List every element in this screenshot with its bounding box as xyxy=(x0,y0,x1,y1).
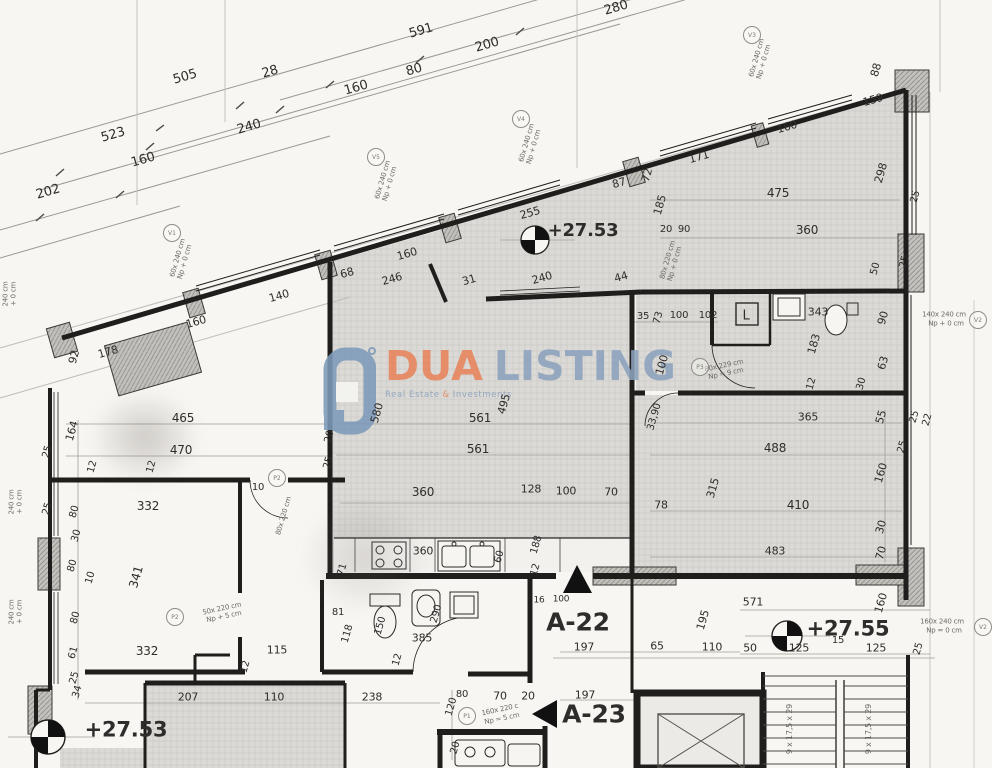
dimension-label: 50 xyxy=(743,643,757,654)
stair-note: 9 x 17,5 x 29 xyxy=(786,704,794,754)
dimension-label: 73 xyxy=(652,311,665,326)
label-layer: 5052859120080160523240160202280921781601… xyxy=(0,0,992,768)
dimension-label: 80 xyxy=(456,690,468,700)
dimension-label: 240 xyxy=(236,117,263,136)
dimension-label: 70 xyxy=(493,691,507,702)
dimension-label: 63 xyxy=(876,355,890,371)
dimension-label: 25 xyxy=(909,190,922,205)
dimension-label: 50 xyxy=(869,262,882,277)
dimension-label: 30 xyxy=(855,377,868,392)
dimension-label: 197 xyxy=(574,642,594,653)
dimension-label: 290 xyxy=(430,604,445,625)
unit-label-a23: A-23 xyxy=(562,702,626,727)
dimension-label: 33,90 xyxy=(646,402,663,431)
opening-marker-badge: V3 xyxy=(743,26,761,44)
dimension-label: 255 xyxy=(519,205,542,221)
opening-note: 80x 220 cm xyxy=(275,496,293,536)
dimension-label: 10 xyxy=(84,571,97,586)
opening-note: 240 cm xyxy=(9,489,16,514)
dimension-label: 160 xyxy=(873,592,889,615)
dimension-label: 128 xyxy=(521,484,541,495)
dimension-label: L xyxy=(742,310,749,323)
dimension-label: 385 xyxy=(412,633,432,644)
dimension-label: 10 xyxy=(252,483,264,493)
opening-note: 240 cm xyxy=(9,599,16,624)
dimension-label: 22 xyxy=(921,413,934,428)
dimension-label: 20 xyxy=(521,691,535,702)
dimension-label: 465 xyxy=(172,412,194,424)
dimension-label: 341 xyxy=(127,565,145,590)
opening-marker-badge: P2 xyxy=(268,469,286,487)
dimension-label: 188 xyxy=(530,535,545,556)
dimension-label: 343 xyxy=(808,307,828,318)
dimension-label: 60 xyxy=(493,550,506,565)
dimension-label: 160 xyxy=(873,462,889,485)
level-annotation: +27.53 xyxy=(548,222,619,240)
dimension-label: 20 xyxy=(449,741,462,756)
opening-marker-badge: P1 xyxy=(458,707,476,725)
dimension-label: 470 xyxy=(170,444,192,456)
dimension-label: 523 xyxy=(100,125,127,144)
dimension-label: 110 xyxy=(702,642,722,653)
dimension-label: 80 xyxy=(68,505,81,520)
opening-marker-badge: P3 xyxy=(691,358,709,376)
dimension-label: 28 xyxy=(260,64,279,81)
dimension-label: 55 xyxy=(874,409,888,425)
dimension-label: 20 xyxy=(660,225,672,235)
dimension-label: 115 xyxy=(267,645,287,656)
dimension-label: 195 xyxy=(695,609,711,632)
stair-note: 9 x 17,5 x 29 xyxy=(865,704,873,754)
dimension-label: 30 xyxy=(70,529,83,544)
dimension-label: 30 xyxy=(874,519,888,535)
dimension-label: 25 xyxy=(322,456,335,471)
dimension-label: 561 xyxy=(469,412,491,424)
dimension-label: 100 xyxy=(553,596,570,605)
dimension-label: 25 xyxy=(41,502,54,517)
dimension-label: 12 xyxy=(805,377,818,392)
dimension-label: 88 xyxy=(869,62,883,78)
dimension-label: 44 xyxy=(613,270,629,284)
dimension-label: 495 xyxy=(496,393,512,416)
opening-marker-badge: V4 xyxy=(512,110,530,128)
dimension-label: 150 xyxy=(374,616,389,637)
dimension-label: 160 xyxy=(396,246,419,262)
dimension-label: 110 xyxy=(264,692,284,703)
opening-marker-badge: V5 xyxy=(367,148,385,166)
opening-marker-badge: V1 xyxy=(163,224,181,242)
dimension-label: 365 xyxy=(798,412,818,423)
floorplan-canvas: DUA LISTING Real Estate & Investments 50… xyxy=(0,0,992,768)
dimension-label: 125 xyxy=(789,643,809,654)
dimension-label: 90 xyxy=(876,310,890,326)
dimension-label: 102 xyxy=(699,311,718,321)
dimension-label: 561 xyxy=(467,443,489,455)
dimension-label: 246 xyxy=(381,271,404,287)
dimension-label: 12 xyxy=(86,460,99,475)
dimension-label: 360 xyxy=(412,486,434,498)
dimension-label: 488 xyxy=(764,442,786,454)
dimension-label: 332 xyxy=(137,500,159,512)
dimension-label: 100 xyxy=(670,311,689,321)
dimension-label: 70 xyxy=(604,487,618,498)
dimension-label: 185 xyxy=(652,194,668,217)
dimension-label: 164 xyxy=(64,420,80,443)
dimension-label: 580 xyxy=(369,402,385,425)
dimension-label: 25 xyxy=(912,642,925,657)
dimension-label: 25 xyxy=(896,440,909,455)
dimension-label: 34 xyxy=(71,685,84,700)
dimension-label: 12 xyxy=(145,460,158,475)
dimension-label: 25 xyxy=(68,671,81,686)
opening-marker-badge: V2 xyxy=(969,311,987,329)
dimension-label: 240 xyxy=(531,270,554,286)
dimension-label: 360 xyxy=(796,224,818,236)
opening-note: Np + 0 cm xyxy=(928,321,964,328)
dimension-label: 100 xyxy=(654,354,670,377)
dimension-label: 71 xyxy=(336,563,349,578)
opening-note: 140x 240 cm xyxy=(922,312,966,319)
dimension-label: 475 xyxy=(767,187,789,199)
opening-note: + 0 cm xyxy=(11,282,18,306)
dimension-label: 360 xyxy=(413,546,433,557)
opening-marker-badge: V2 xyxy=(974,618,992,636)
dimension-label: 90 xyxy=(678,225,690,235)
dimension-label: 207 xyxy=(178,692,198,703)
dimension-label: 202 xyxy=(35,182,62,201)
dimension-label: 183 xyxy=(806,333,822,356)
dimension-label: 160 xyxy=(776,119,799,135)
dimension-label: 25 xyxy=(41,445,54,460)
opening-note: 240 cm xyxy=(3,281,10,306)
dimension-label: 92 xyxy=(67,349,81,365)
dimension-label: 125 xyxy=(866,643,886,654)
dimension-label: 31 xyxy=(461,273,477,287)
opening-note: 160x 240 cm xyxy=(920,619,964,626)
dimension-label: 72 xyxy=(640,167,654,183)
dimension-label: 178 xyxy=(97,344,120,360)
unit-label-a22: A-22 xyxy=(546,610,610,635)
dimension-label: 78 xyxy=(654,500,668,511)
dimension-label: 171 xyxy=(688,149,711,165)
dimension-label: 87 xyxy=(611,176,627,190)
dimension-label: 20 xyxy=(323,430,336,445)
dimension-label: 81 xyxy=(332,608,344,618)
dimension-label: 80 xyxy=(66,559,79,574)
dimension-label: 140 xyxy=(268,288,291,304)
dimension-label: 80 xyxy=(404,62,423,79)
opening-marker-badge: P2 xyxy=(166,608,184,626)
dimension-label: 16 xyxy=(533,597,544,606)
opening-note: Np = 0 cm xyxy=(926,628,962,635)
level-annotation: +27.55 xyxy=(807,619,890,640)
dimension-label: 591 xyxy=(408,21,435,40)
dimension-label: 12 xyxy=(529,563,542,578)
dimension-label: 505 xyxy=(172,67,199,86)
dimension-label: 160 xyxy=(130,150,157,169)
dimension-label: 12 xyxy=(391,653,404,668)
dimension-label: 68 xyxy=(339,266,355,280)
dimension-label: 25 xyxy=(908,410,921,425)
dimension-label: 332 xyxy=(136,645,158,657)
dimension-label: 159 xyxy=(862,92,885,108)
opening-note: + 0 cm xyxy=(17,600,24,624)
dimension-label: 65 xyxy=(650,641,664,652)
dimension-label: 160 xyxy=(185,314,208,330)
dimension-label: 118 xyxy=(341,624,356,645)
dimension-label: 70 xyxy=(874,545,888,561)
dimension-label: 200 xyxy=(474,35,501,54)
dimension-label: 315 xyxy=(705,477,721,500)
dimension-label: 100 xyxy=(556,486,576,497)
dimension-label: 298 xyxy=(873,162,889,185)
opening-note: + 0 cm xyxy=(17,490,24,514)
dimension-label: 483 xyxy=(765,546,785,557)
dimension-label: 410 xyxy=(787,499,809,511)
dimension-label: 35 xyxy=(637,312,649,322)
dimension-label: 12 xyxy=(239,660,252,675)
dimension-label: 238 xyxy=(362,692,382,703)
dimension-label: 25 xyxy=(898,255,911,270)
dimension-label: 280 xyxy=(603,0,630,18)
level-annotation: +27.53 xyxy=(85,720,168,741)
dimension-label: 61 xyxy=(67,646,80,661)
dimension-label: 160 xyxy=(343,78,370,97)
dimension-label: 571 xyxy=(743,597,763,608)
dimension-label: 80 xyxy=(69,611,82,626)
